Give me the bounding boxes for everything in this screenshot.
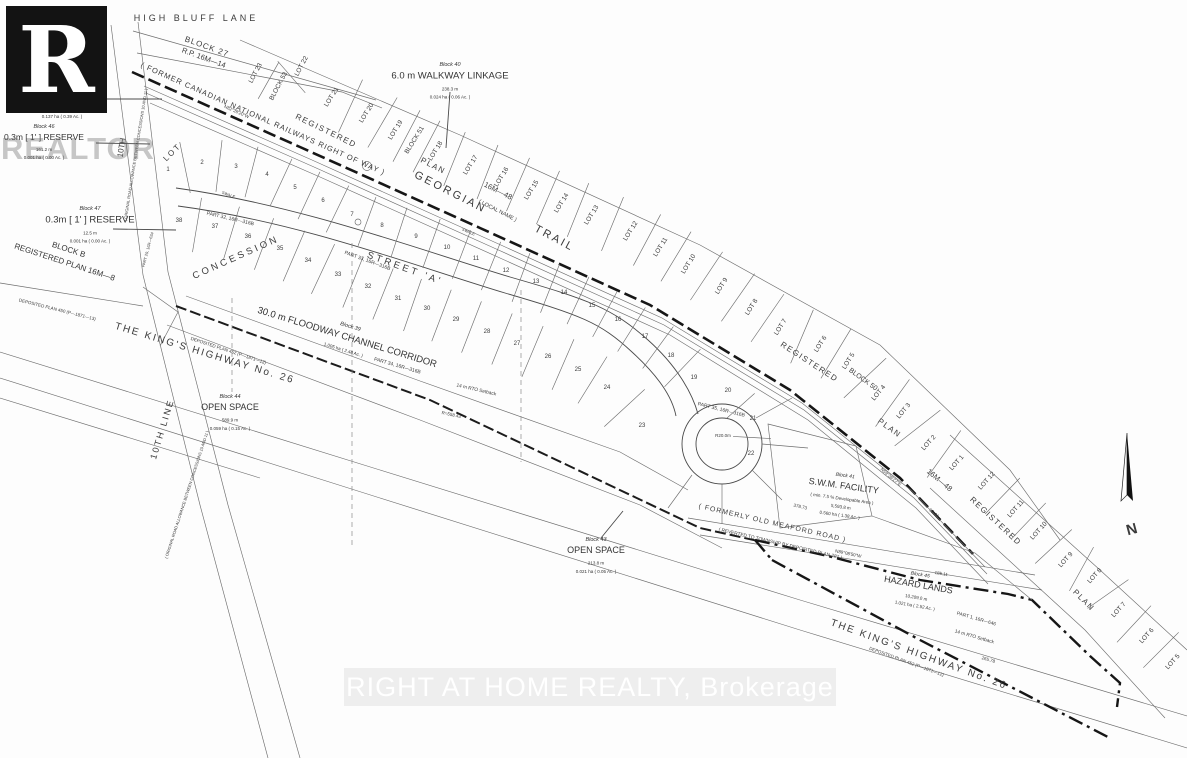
kings-highway-left-label: THE KING'S HIGHWAY No. 26	[114, 321, 296, 386]
street-a-upper-lots-label: 13	[533, 279, 540, 285]
street-a-lower-lots-label: 33	[335, 272, 342, 278]
plan-16m48-word-2: 16M—48	[925, 467, 954, 493]
registered-plan-16m48-band-label: LOT 13	[583, 204, 601, 226]
street-a-lower-lots-label: 27	[514, 341, 521, 347]
floodway-north-edge	[186, 296, 688, 490]
block-43-note: Block 43OPEN SPACE213.8 m0.021 ha ( 0.05…	[567, 537, 625, 574]
culdesac-lots-label: 22	[748, 451, 755, 457]
street-a-upper-lots-label: 3	[234, 164, 238, 170]
registered-plan-lower-band-label: LOT 10	[1029, 520, 1049, 541]
north-arrow-needle-left	[1121, 433, 1127, 501]
swale-label-1: SWALE	[221, 190, 236, 200]
registered-plan-16m48-band-label: LOT 21	[323, 86, 341, 108]
registered-plan-16m48-band-label: LOT 17	[462, 154, 480, 176]
street-a-lower-lots-divider	[522, 326, 543, 377]
street-a-lower-lots-divider	[343, 256, 363, 307]
dim-378-73: 378.73	[793, 503, 808, 511]
street-a-lower-lots-label: 34	[305, 258, 312, 264]
street-a-lower-lots-divider	[373, 268, 393, 319]
street-a-upper-lots-label: 17	[642, 334, 649, 340]
street-a-upper-lots-label: 1	[166, 167, 170, 173]
registered-plan-16m48-band-label: LOT 12	[622, 220, 640, 242]
registered-plan-16m48-band-label: LOT 14	[553, 192, 571, 214]
street-a-upper-lots-label: 18	[668, 353, 675, 359]
registered-plan-lower-band-label: LOT 9	[1057, 551, 1074, 569]
registered-plan-16m48-band-label: LOT 1	[948, 454, 965, 472]
registered-plan-lower-band-label: LOT 6	[1138, 627, 1155, 645]
realtor-logo: R	[6, 6, 107, 113]
registered-plan-16m48-band-label: LOT 3	[895, 402, 912, 421]
street-a-upper-lots-label: 12	[503, 268, 510, 274]
street-a-upper-lots-label: 16	[615, 317, 622, 323]
street-a-lower-lots-divider	[552, 339, 574, 389]
street-a-lower-lots-label: 29	[453, 317, 460, 323]
street-a-lower-lots-divider	[192, 198, 201, 252]
street-a-upper-lots-label: 14	[561, 290, 568, 296]
registered-plan-16m48-band-divider	[506, 158, 529, 211]
registered-plan-lower-band-label: LOT 12	[977, 470, 997, 491]
street-a-upper-lots-label: 5	[293, 185, 297, 191]
realtor-logo-letter: R	[18, 14, 94, 106]
street-a-lower-lots-divider	[432, 290, 452, 341]
dim-185-11: 185.11	[934, 570, 949, 577]
culdesac-lots-label: 20	[725, 388, 732, 394]
part-29-label: PART 29, 16R—634	[140, 231, 154, 268]
street-a-lower-lots-label: 31	[395, 296, 402, 302]
street-a-upper-lots-label: 6	[321, 198, 325, 204]
street-a-upper-lots-divider	[298, 172, 320, 219]
street-a-lower-lots-label: 26	[545, 354, 552, 360]
street-a-upper-lots-label: 15	[589, 303, 596, 309]
registered-plan-16m48-band-label: LOT 20	[358, 102, 376, 124]
registered-plan-16m48-band-label: LOT 6	[813, 334, 829, 353]
street-a-lower-lots-divider	[492, 313, 512, 364]
street-a-upper-lots-label: 9	[414, 234, 418, 240]
culdesac-inner	[696, 418, 748, 470]
street-a-upper-lots-divider	[270, 159, 292, 206]
street-a-upper-lots-label: 4	[265, 172, 269, 178]
street-a-upper-lots-label: 11	[473, 256, 480, 262]
street-a-lower-lots-label: 28	[484, 329, 491, 335]
registered-plan-16m48-band-label: LOT 15	[523, 179, 541, 201]
registered-plan-lower-band-label: LOT 7	[1110, 601, 1127, 619]
railway-row-label: ( FORMER CANADIAN NATIONAL RAILWAYS RIGH…	[139, 60, 386, 177]
deposited-450-label: DEPOSITED PLAN 450 (P—1871—13)	[18, 298, 96, 322]
street-a-upper-lots-divider	[245, 147, 258, 197]
tenth-line-paren: ( ORIGINAL ROAD ALLOWANCE BETWEEN CONCES…	[163, 429, 209, 559]
street-a-label: STREET 'A'	[365, 250, 444, 288]
survey-plan-drawing: HIGH BLUFF LANEBLOCK 27R.P. 16M—14( FORM…	[0, 0, 1187, 758]
block27-row-label: LOT 23	[248, 62, 264, 85]
street-a-lower-lots-label: 25	[575, 367, 582, 373]
street-a-upper-lots-label: 7	[350, 212, 354, 218]
block-b-note: BLOCK BREGISTERED PLAN 16M—8	[13, 229, 121, 283]
registered-plan-16m48-band-divider	[536, 171, 559, 224]
street-a-lower-lots-label: 35	[277, 246, 284, 252]
georgian-label: GEORGIAN	[412, 169, 488, 216]
block-40-note: Block 406.0 m WALKWAY LINKAGE238.3 m0.02…	[391, 62, 508, 100]
deposited-plan-452-line	[176, 306, 758, 541]
registered-plan-16m48-band-label: LOT 5	[841, 351, 857, 370]
street-a-upper-lots-divider	[216, 140, 222, 192]
street-a-upper-lots-divider	[540, 264, 559, 312]
registered-plan-lower-band-label: LOT 5	[1164, 653, 1181, 671]
part-1-16r-646-label: PART 1, 16R—646	[956, 611, 997, 628]
north-arrow-needle-right	[1127, 433, 1133, 501]
street-a-upper-lots-label: 19	[691, 375, 698, 381]
street-a-upper-lots-divider	[180, 142, 190, 193]
block-44-note: Block 44OPEN SPACE589.9 m0.059 ha ( 0.15…	[201, 394, 259, 431]
registered-plan-16m48-band-label: LOT 7	[773, 317, 789, 336]
street-a-upper-lots-label: 10	[444, 245, 451, 251]
culdesac-lots-divider	[733, 436, 771, 438]
registered-plan-16m48-band-label: LOT 11	[652, 236, 669, 258]
street-a-lower-lots-label: 38	[176, 218, 183, 224]
street-a-lower-lots-label: 23	[639, 423, 646, 429]
tenth-line-east-edge	[138, 22, 300, 758]
survey-plan-page: R REALTOR RIGHT AT HOME REALTY, Brokerag…	[0, 0, 1187, 758]
street-a-lower-lots-divider	[311, 244, 334, 294]
registered-plan-16m48-band-divider	[567, 183, 589, 237]
street-a-upper-lots-label: 2	[200, 160, 204, 166]
lot-township-label: LOT	[161, 141, 183, 163]
registered-plan-16m48-band-label: BLOCK 51	[404, 125, 427, 155]
culdesac-lots-label: 21	[750, 416, 757, 422]
north-label: N	[1124, 520, 1139, 539]
street-a-upper-lots-divider	[618, 307, 646, 351]
street-a-lower-lots-divider	[283, 231, 305, 282]
radius-558-label: R=558.43	[441, 410, 462, 419]
brokerage-watermark: RIGHT AT HOME REALTY, Brokerage	[344, 668, 836, 706]
block27-row-label: LOT 22	[294, 55, 310, 78]
street-a-upper-lots-divider	[643, 327, 674, 369]
street-a-upper-lots-divider	[391, 208, 407, 257]
registered-plan-16m48-band-label: LOT 8	[744, 297, 760, 316]
street-a-lower-lots-divider	[462, 301, 482, 352]
block-47-note: Block 470.3m [ 1' ] RESERVE12.5 m0.001 h…	[45, 206, 134, 244]
trail-label: TRAIL	[532, 223, 576, 254]
street-a-lower-lots-label: 30	[424, 306, 431, 312]
registered-plan-16m48-band-label: LOT 18	[427, 140, 445, 162]
street-a-upper-lots-label: 8	[380, 223, 384, 229]
high-bluff-lane-label: HIGH BLUFF LANE	[134, 13, 259, 23]
street-a-lower-lots-divider	[404, 279, 422, 331]
rto-setback-right-label: 14 m RTO Setback	[954, 629, 995, 646]
meaford-road-edge-1	[688, 518, 1035, 575]
registered-plan-16m48-band-label: LOT 10	[680, 253, 698, 275]
street-a-lower-lots-divider	[604, 389, 644, 426]
registered-plan-lower-band-label: LOT 11	[1006, 499, 1026, 520]
street-a-lower-lots-label: 32	[365, 284, 372, 290]
registered-plan-lower-band-label: LOT 8	[1086, 567, 1103, 585]
street-a-upper-lots-divider	[481, 242, 500, 290]
realtor-watermark-text: REALTOR	[1, 131, 155, 167]
lower-band-north-edge	[950, 435, 1187, 650]
block-41-swm-note: Block 41S.W.M. FACILITY( min. 7.5 % Deve…	[804, 468, 880, 522]
culdesac-radius-label: R20.0m	[715, 433, 731, 438]
street-a-lower-lots-label: 24	[604, 385, 611, 391]
registered-plan-16m48-band-label: LOT 2	[920, 434, 937, 452]
plan-word-3: PLAN	[1071, 588, 1096, 613]
survey-monument-circle-2	[355, 219, 361, 225]
street-a-lower-lots-label: 37	[212, 224, 219, 230]
street-a-upper-lots-divider	[423, 219, 440, 268]
street-a-lower-lots-divider	[578, 357, 607, 404]
rto-setback-left-label: 14 m RTO Setback	[456, 383, 498, 398]
registered-plan-16m48-band-label: LOT 19	[387, 119, 405, 141]
registered-plan-16m48-band-label: LOT 16	[493, 166, 511, 188]
street-a-lower-lots-label: 36	[245, 234, 252, 240]
dim-265-78: 265.78	[981, 655, 996, 664]
concession-label: CONCESSION	[191, 234, 281, 282]
registered-plan-16m48-band-label: LOT 9	[714, 276, 730, 295]
